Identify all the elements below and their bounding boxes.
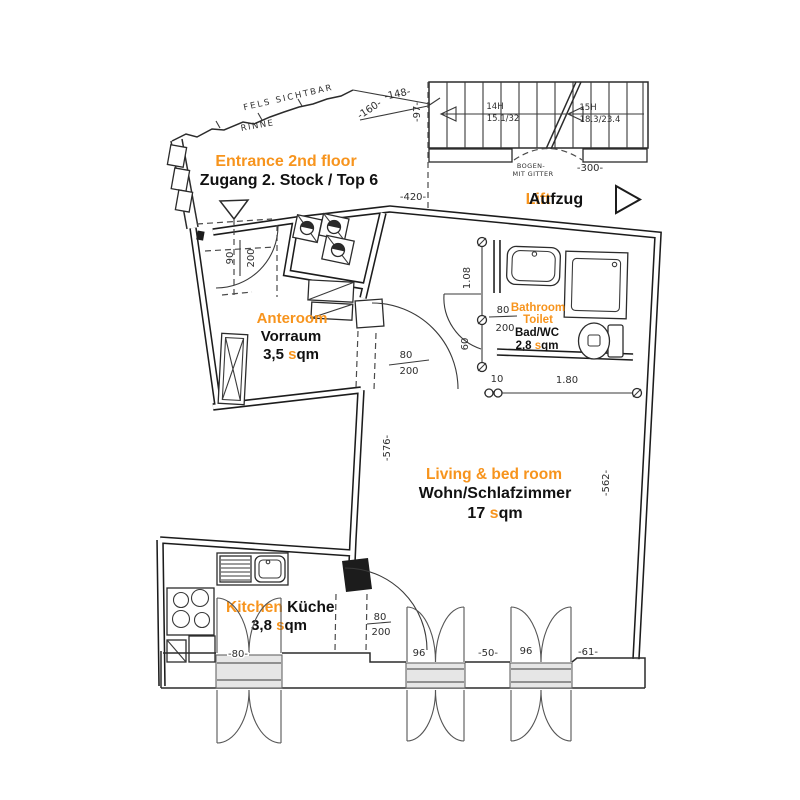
window1-dim: 96 bbox=[413, 648, 426, 659]
svg-text:Living & bed room: Living & bed room bbox=[426, 466, 562, 483]
bathroom-label: Bathroom Toilet Bad/WC 2,8 sqm bbox=[511, 302, 565, 352]
svg-text:200: 200 bbox=[495, 323, 514, 334]
window-living-2 bbox=[510, 663, 572, 688]
lift: Lift Aufzug bbox=[526, 186, 640, 213]
site-leader-3 bbox=[428, 98, 440, 106]
entrance-label-en: Entrance 2nd floor bbox=[215, 153, 356, 170]
stair-landing-right bbox=[583, 149, 647, 162]
kitchen-door-size-label: 80 200 bbox=[367, 612, 391, 638]
bathroom: 1.08 60 80 200 10 1.80 Bathroom Toilet B… bbox=[444, 238, 642, 398]
dim-97: -97- bbox=[412, 102, 423, 122]
anteroom-label: Anteroom Vorraum 3,5 sqm bbox=[257, 310, 328, 363]
corner-dim: -61- bbox=[578, 647, 598, 658]
kitchen: 80 200 Kitchen Küche 3,8 sqm bbox=[167, 553, 427, 662]
rock-edge-line bbox=[172, 90, 353, 141]
skylight-tiles bbox=[293, 214, 354, 265]
entrance-guide-h3 bbox=[222, 292, 252, 295]
svg-text:2,8 sqm: 2,8 sqm bbox=[516, 340, 559, 352]
arch-label-line2: MIT GITTER bbox=[513, 170, 554, 178]
living-room-label: Living & bed room Wohn/Schlafzimmer 17 s… bbox=[419, 466, 572, 522]
rock-label: FELS SICHTBAR bbox=[243, 83, 335, 113]
bath-wall-dim: 1.08 bbox=[462, 267, 473, 289]
left-wall-window-3 bbox=[175, 190, 192, 212]
svg-text:200: 200 bbox=[371, 627, 390, 638]
stair-flight2-ratio: 18.3/23.4 bbox=[580, 115, 621, 125]
gutter-label: RINNE bbox=[240, 118, 275, 134]
left-wall-window-1 bbox=[167, 145, 186, 167]
svg-text:200: 200 bbox=[399, 366, 418, 377]
bottom-wall: -80- 96 -50- 96 -61- bbox=[161, 598, 645, 743]
stair-flight1-steps: 14H bbox=[486, 102, 503, 112]
svg-text:Toilet: Toilet bbox=[523, 314, 553, 326]
arch-dashed-line bbox=[514, 149, 582, 161]
svg-text:Bad/WC: Bad/WC bbox=[515, 327, 559, 339]
svg-text:Bathroom: Bathroom bbox=[511, 302, 565, 314]
bath-recess-dim: 60 bbox=[460, 338, 471, 351]
floor-plan-drawing: 90 200 bbox=[0, 0, 800, 800]
kitchen-stove bbox=[167, 588, 214, 635]
living-height-right: -562- bbox=[601, 469, 612, 496]
window2-dim: 96 bbox=[520, 646, 533, 657]
anteroom-wardrobe bbox=[218, 333, 248, 404]
window-gap-dim: -50- bbox=[478, 648, 498, 659]
kitchen-door-opening-1 bbox=[335, 594, 336, 651]
bathroom-shower bbox=[564, 251, 628, 319]
window-kitchen bbox=[216, 655, 282, 688]
entrance-door-height: 200 bbox=[246, 248, 257, 267]
svg-text:3,5 sqm: 3,5 sqm bbox=[263, 346, 319, 363]
arch-label-line1: BOGEN- bbox=[517, 162, 545, 170]
kitchen-cabinets bbox=[167, 636, 215, 662]
living-height-left: -576- bbox=[382, 434, 393, 461]
bathroom-sink bbox=[506, 246, 560, 286]
lift-arrow-icon bbox=[616, 186, 640, 213]
rock-tick-2 bbox=[258, 113, 262, 120]
entrance-door-width: 90 bbox=[225, 252, 236, 265]
dim-300: -300- bbox=[577, 163, 604, 174]
stair-flight2-steps: 15H bbox=[579, 103, 596, 113]
lift-label-de: Aufzug bbox=[529, 191, 583, 208]
entrance-door-size-label: 90 200 bbox=[225, 240, 257, 276]
chimney-flue bbox=[342, 558, 372, 592]
entrance-door-symbol bbox=[220, 200, 248, 219]
bathroom-toilet bbox=[579, 323, 624, 359]
window-living-1 bbox=[406, 663, 465, 688]
floor-plan-page: 90 200 bbox=[0, 0, 800, 800]
living-door-size-label: 80 200 bbox=[389, 350, 429, 377]
svg-text:Wohn/Schlafzimmer: Wohn/Schlafzimmer bbox=[419, 485, 572, 502]
stair-landing-left bbox=[429, 149, 512, 162]
wall-tick bbox=[196, 231, 204, 241]
svg-text:Vorraum: Vorraum bbox=[261, 328, 322, 345]
living-door-opening-2 bbox=[374, 333, 376, 390]
svg-text:3,8 sqm: 3,8 sqm bbox=[251, 617, 307, 634]
bath-width-dim: 1.80 bbox=[556, 375, 578, 386]
svg-text:80: 80 bbox=[497, 305, 510, 316]
kitchen-window-dim: -80- bbox=[228, 649, 248, 660]
svg-text:17 sqm: 17 sqm bbox=[467, 505, 522, 522]
kitchen-counter bbox=[217, 553, 288, 585]
svg-text:80: 80 bbox=[400, 350, 413, 361]
living-room: 80 200 -576- -562- Living & bed room Woh… bbox=[355, 299, 612, 522]
rock-tick-1 bbox=[216, 121, 220, 128]
entrance-label: Entrance 2nd floor Zugang 2. Stock / Top… bbox=[200, 153, 378, 189]
svg-text:80: 80 bbox=[374, 612, 387, 623]
svg-text:Anteroom: Anteroom bbox=[257, 310, 328, 327]
left-wall-window-2 bbox=[171, 168, 189, 191]
living-door-opening-1 bbox=[356, 331, 358, 388]
dim-420: -420- bbox=[400, 192, 427, 203]
entrance-label-de: Zugang 2. Stock / Top 6 bbox=[200, 172, 378, 189]
stair-flight1-ratio: 15.1/32 bbox=[487, 114, 520, 124]
kitchen-door-opening-2 bbox=[366, 594, 367, 651]
bath-step-dim: 10 bbox=[491, 374, 504, 385]
